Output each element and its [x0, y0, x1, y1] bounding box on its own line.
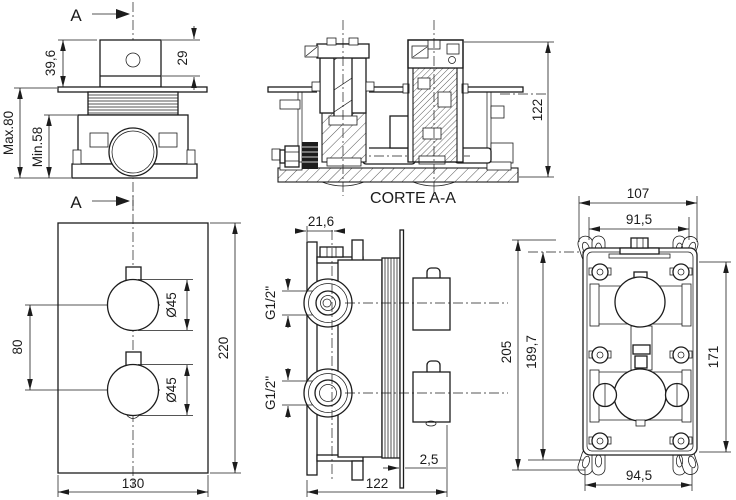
- dim-max-depth: Max.80: [1, 111, 16, 155]
- dim-plate-height: 220: [216, 337, 231, 360]
- knob-top: [108, 280, 159, 331]
- technical-drawing-canvas: A A 39,6 29: [0, 0, 736, 500]
- dim-box-height: 171: [706, 346, 721, 369]
- dim-inlet-bottom: G1/2": [263, 376, 278, 410]
- dim-handle-height: 39,6: [43, 50, 58, 76]
- handle-outline: [100, 40, 161, 87]
- knob-bottom: [108, 365, 159, 416]
- body-port-left: [90, 133, 108, 147]
- handle-top-side: [413, 278, 450, 330]
- base-body-section: [278, 168, 518, 182]
- threaded-sleeve: [88, 92, 178, 115]
- dim-ear-span-height: 189,7: [524, 335, 539, 369]
- body-boss-outer: [109, 128, 157, 176]
- section-title: CORTE A-A: [370, 190, 456, 207]
- dim-total-depth: 122: [366, 476, 389, 491]
- dim-knob-spacing: 80: [10, 339, 25, 354]
- dim-inlet-top: G1/2": [263, 286, 278, 320]
- dim-box-width: 107: [627, 186, 650, 201]
- side-view: 21,6 G1/2" G1/2" 2,5 122: [263, 214, 508, 497]
- section-a-a-view: 122 CORTE A-A: [268, 20, 554, 207]
- dim-min-depth: Min.58: [30, 127, 45, 168]
- sleeve-ribs: [88, 95, 178, 113]
- installation-side-view: A A 39,6 29: [1, 2, 207, 213]
- dim-knob-dia-bottom: Ø45: [164, 377, 179, 403]
- dim-knob-dia-top: Ø45: [164, 292, 179, 318]
- inlet-boss-bottom: [304, 369, 352, 417]
- dim-ear-span-width: 91,5: [626, 212, 652, 227]
- right-cartridge-section: [403, 40, 468, 164]
- valve-bottom-circle: [614, 369, 666, 421]
- body-tab-left: [73, 150, 81, 164]
- inlet-thread: [302, 142, 318, 169]
- dim-section-height: 122: [530, 99, 545, 122]
- dim-handle-visible: 29: [175, 50, 190, 65]
- wall-plate-section: [268, 87, 523, 92]
- inlet-nut: [285, 146, 299, 167]
- inlet-boss-top: [304, 279, 352, 327]
- valve-top-circle: [615, 277, 665, 327]
- trim-plate-edge: [400, 230, 404, 488]
- section-label-a-bottom: A: [70, 193, 82, 212]
- wall-plate-edge: [58, 87, 207, 92]
- dim-ear-bottom-width: 94,5: [626, 468, 652, 483]
- section-label-a-top: A: [70, 6, 82, 25]
- body-tab-right: [187, 150, 195, 164]
- rough-in-box-view: 107 91,5 205 189,7 171 94,5: [499, 186, 731, 491]
- top-bolt: [631, 238, 648, 248]
- dim-plate-width: 130: [122, 476, 145, 491]
- handle-bottom-side: [413, 372, 450, 422]
- front-view: 80 Ø45 Ø45 220 130: [10, 196, 241, 497]
- dim-plate-thickness: 2,5: [420, 452, 439, 467]
- body-port-right: [159, 133, 177, 147]
- mounting-bracket: [307, 242, 317, 475]
- dim-bracket-offset: 21,6: [308, 214, 334, 229]
- technical-drawing-page: A A 39,6 29: [0, 0, 736, 500]
- bracket-bolt: [320, 247, 343, 257]
- dim-total-height: 205: [499, 341, 514, 364]
